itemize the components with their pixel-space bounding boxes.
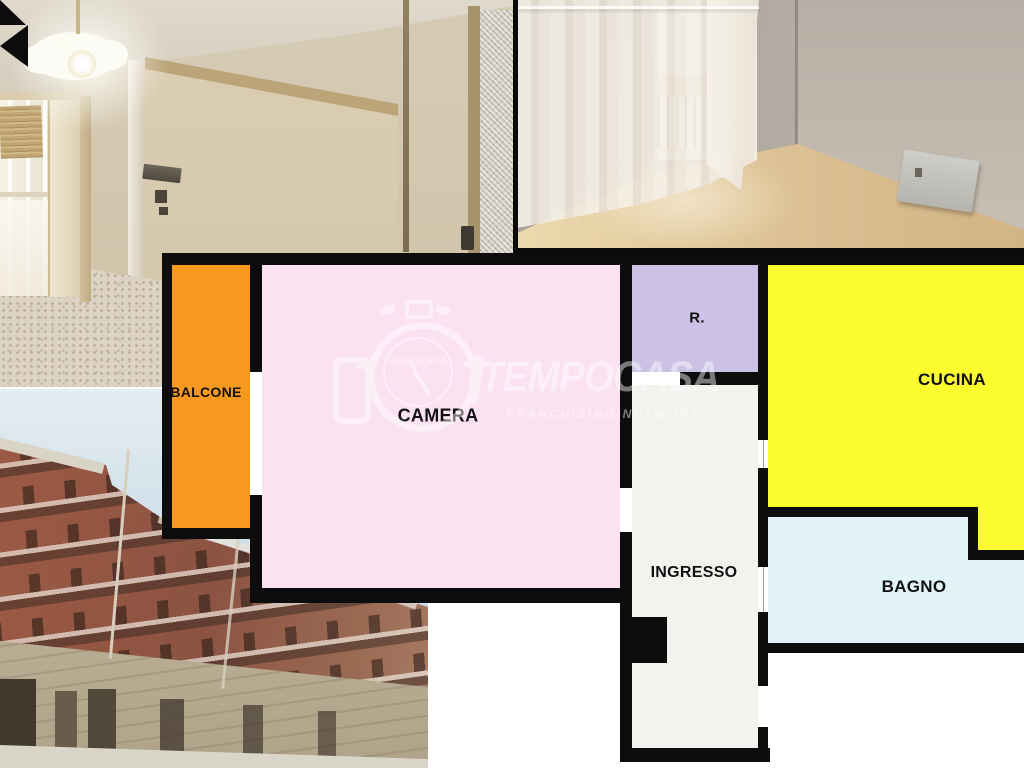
entrance-opening [758,686,768,727]
chandelier-lobe [92,40,128,70]
room-label-ripostiglio: R. [689,310,705,327]
room-label-cucina: CUCINA [918,370,986,390]
doorway-edge [403,0,409,252]
wall-notch-horizontal [968,550,1024,560]
wall-ripostiglio-bottom [680,372,768,385]
pillar [632,617,667,663]
wall-top [162,253,1024,265]
shop-window [55,691,77,751]
photo-divider [513,0,518,265]
wall-fixture [155,190,167,203]
wall-balcone-camera-upper [250,253,262,372]
curtain-rod [517,6,759,9]
door-opening-camera [620,488,632,532]
wall-ingresso-bottom [620,748,770,762]
listing-collage: BALCONE CAMERA R. CUCINA INGRESSO BAGNO … [0,0,1024,768]
entrance-door [318,711,336,761]
door-opening-bagno [758,567,768,612]
room-camera [262,265,620,588]
window-curtain [0,200,48,296]
wall-mid-right-b [758,468,768,567]
room-cucina-notch [978,507,1024,550]
wall-camera-right-lower [620,532,632,762]
frosted-glass-door [480,10,513,254]
room-label-ingresso: INGRESSO [651,564,738,582]
wall-notch-vertical [968,517,978,550]
door-opening-ripostiglio [632,372,680,385]
entrance-door [243,705,263,761]
door-opening-balcone [250,372,262,495]
wall-balcone-camera-lower [250,495,262,603]
room-label-bagno: BAGNO [882,577,947,597]
wall-corner [795,0,798,150]
window-rail [0,192,48,197]
glass-door-frame [468,6,480,254]
room-label-camera: CAMERA [398,406,479,427]
door-handle [461,226,474,250]
light-bulb [68,50,96,78]
wall-bagno-bottom [758,643,1024,653]
wall-switch [159,207,168,215]
room-label-balcone: BALCONE [170,384,241,400]
wall-camera-bottom [250,588,632,603]
door-opening-cucina [758,440,768,468]
wall-balcone-bottom [162,528,262,539]
wall-cucina-bagno [768,507,978,517]
wall-mid-right-a [758,253,768,440]
photo-interior-room-2 [517,0,1024,255]
wall-camera-right-upper [620,253,632,488]
chandelier-lobe [22,44,62,74]
wall-socket [915,168,922,177]
chandelier-chain [76,0,80,34]
